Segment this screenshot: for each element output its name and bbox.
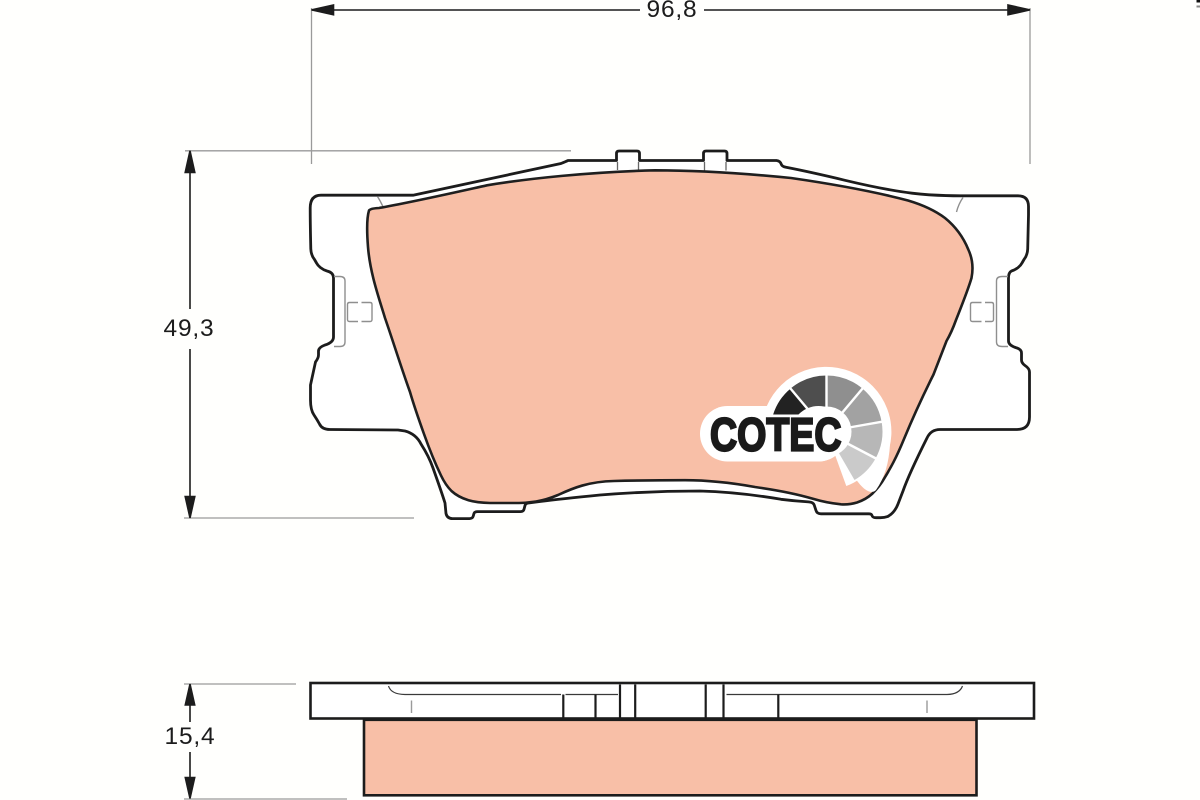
svg-text:96,8: 96,8 bbox=[647, 0, 698, 23]
svg-text:COTEC: COTEC bbox=[710, 409, 842, 461]
svg-text:49,3: 49,3 bbox=[164, 315, 215, 342]
svg-text:15,4: 15,4 bbox=[165, 723, 216, 750]
